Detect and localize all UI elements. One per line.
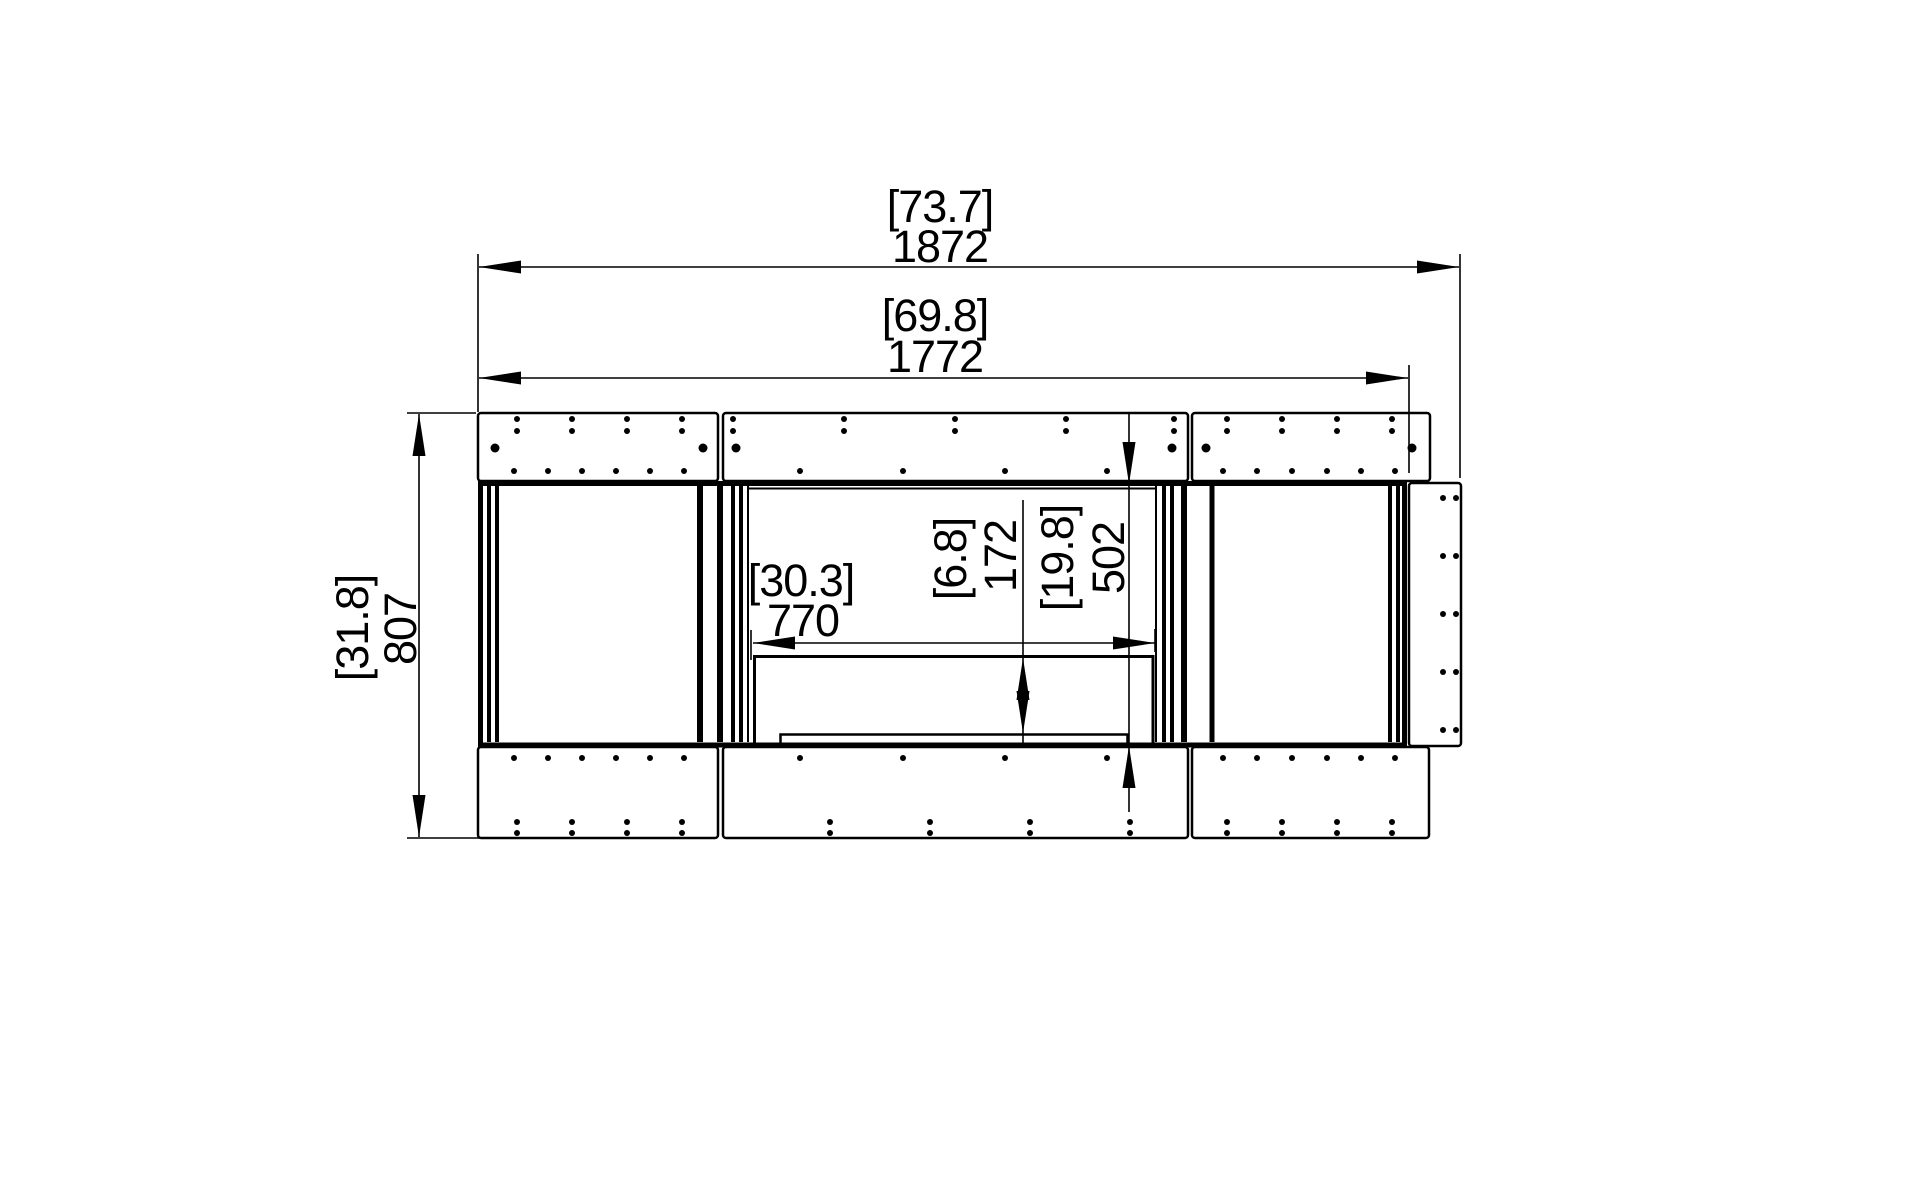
screw-hole-dot <box>797 755 803 761</box>
screw-hole-dot <box>1440 727 1446 733</box>
drawing-page: [73.7] 1872 [69.8] 1772 [31.8] 807 [30.3… <box>0 0 1920 1187</box>
screw-hole-dot <box>1279 819 1285 825</box>
screw-hole-dot <box>900 755 906 761</box>
screw-hole-dot <box>927 830 933 836</box>
screw-hole-dot <box>841 416 847 422</box>
screw-hole-dot <box>1453 553 1459 559</box>
screw-hole-dot <box>1440 553 1446 559</box>
screw-hole-dot <box>624 416 630 422</box>
dim-burner-height-mm: 172 <box>975 520 1026 592</box>
screw-hole-dot <box>1358 468 1364 474</box>
screw-hole-dot <box>514 416 520 422</box>
screw-hole-dot <box>679 428 685 434</box>
screw-hole-dot <box>1002 468 1008 474</box>
screw-hole-dot <box>1324 468 1330 474</box>
screw-hole-dot <box>1392 468 1398 474</box>
screw-hole-dot <box>613 755 619 761</box>
screw-hole-dot <box>624 830 630 836</box>
screw-hole-dot <box>1224 428 1230 434</box>
screw-hole-dot <box>1453 669 1459 675</box>
screw-hole-dot <box>624 819 630 825</box>
screw-hole-dot <box>1127 819 1133 825</box>
screw-hole-dot <box>1027 819 1033 825</box>
screw-hole-dot <box>732 444 741 453</box>
screw-hole-dot <box>730 428 736 434</box>
screw-hole-dot <box>511 755 517 761</box>
screw-hole-dot <box>569 416 575 422</box>
screw-hole-dot <box>511 468 517 474</box>
screw-hole-dot <box>679 830 685 836</box>
screw-hole-dot <box>1104 468 1110 474</box>
screw-hole-dot <box>1063 416 1069 422</box>
dim-opening-height-mm: 502 <box>1083 522 1134 594</box>
screw-hole-dot <box>1334 416 1340 422</box>
screw-hole-dot <box>681 468 687 474</box>
top-mounting-flange-panel <box>723 413 1188 481</box>
screw-hole-dot <box>647 468 653 474</box>
screw-hole-dot <box>1254 468 1260 474</box>
screw-hole-dot <box>699 444 708 453</box>
screw-hole-dot <box>1440 495 1446 501</box>
bottom-mounting-flange-panel <box>723 747 1188 838</box>
screw-hole-dot <box>1289 755 1295 761</box>
screw-hole-dot <box>827 819 833 825</box>
screw-hole-dot <box>1224 830 1230 836</box>
screw-hole-dot <box>624 428 630 434</box>
screw-hole-dot <box>1202 444 1211 453</box>
screw-hole-dot <box>1453 727 1459 733</box>
screw-hole-dot <box>1358 755 1364 761</box>
screw-hole-dot <box>730 416 736 422</box>
screw-hole-dot <box>1453 611 1459 617</box>
screw-hole-dot <box>1279 416 1285 422</box>
screw-hole-dot <box>1392 755 1398 761</box>
screw-hole-dot <box>1440 669 1446 675</box>
screw-hole-dot <box>952 428 958 434</box>
screw-hole-dot <box>1279 830 1285 836</box>
screw-hole-dot <box>514 819 520 825</box>
screw-hole-dot <box>514 428 520 434</box>
screw-hole-dot <box>1224 416 1230 422</box>
dim-opening-width-mm: 770 <box>767 595 839 646</box>
screw-hole-dot <box>900 468 906 474</box>
dim-body-width-mm: 1772 <box>887 331 983 382</box>
screw-hole-dot <box>1220 755 1226 761</box>
dim-overall-width-mm: 1872 <box>892 221 988 272</box>
screw-hole-dot <box>579 755 585 761</box>
screw-hole-dot <box>569 830 575 836</box>
screw-hole-dot <box>927 819 933 825</box>
screw-hole-dot <box>1027 830 1033 836</box>
screw-hole-dot <box>569 819 575 825</box>
screw-hole-dot <box>681 755 687 761</box>
dim-overall-height-mm: 807 <box>375 593 426 665</box>
screw-hole-dot <box>827 830 833 836</box>
screw-hole-dot <box>1389 428 1395 434</box>
screw-hole-dot <box>1453 495 1459 501</box>
screw-hole-dot <box>841 428 847 434</box>
screw-hole-dot <box>1440 611 1446 617</box>
dim-opening-height-inches: [19.8] <box>1032 505 1083 612</box>
screw-hole-dot <box>1002 755 1008 761</box>
screw-hole-dot <box>1334 830 1340 836</box>
dim-overall-height-inches: [31.8] <box>327 575 378 682</box>
screw-hole-dot <box>647 755 653 761</box>
screw-hole-dot <box>1389 819 1395 825</box>
screw-hole-dot <box>514 830 520 836</box>
screw-hole-dot <box>1389 416 1395 422</box>
screw-hole-dot <box>491 444 500 453</box>
screw-hole-dot <box>797 468 803 474</box>
screw-hole-dot <box>1171 428 1177 434</box>
screw-hole-dot <box>545 468 551 474</box>
screw-hole-dot <box>1220 468 1226 474</box>
technical-drawing-canvas: [73.7] 1872 [69.8] 1772 [31.8] 807 [30.3… <box>0 0 1920 1187</box>
screw-hole-dot <box>1063 428 1069 434</box>
screw-hole-dot <box>1324 755 1330 761</box>
screw-hole-dot <box>1104 755 1110 761</box>
screw-hole-dot <box>1334 428 1340 434</box>
screw-hole-dot <box>1279 428 1285 434</box>
screw-hole-dot <box>545 755 551 761</box>
screw-hole-dot <box>569 428 575 434</box>
screw-hole-dot <box>1389 830 1395 836</box>
screw-hole-dot <box>679 416 685 422</box>
screw-hole-dot <box>1254 755 1260 761</box>
screw-hole-dot <box>579 468 585 474</box>
screw-hole-dot <box>1334 819 1340 825</box>
screw-hole-dot <box>1171 416 1177 422</box>
screw-hole-dot <box>613 468 619 474</box>
screw-hole-dot <box>1289 468 1295 474</box>
screw-hole-dot <box>679 819 685 825</box>
dim-burner-height-inches: [6.8] <box>925 518 976 601</box>
screw-hole-dot <box>1127 830 1133 836</box>
screw-hole-dot <box>1224 819 1230 825</box>
screw-hole-dot <box>952 416 958 422</box>
screw-hole-dot <box>1168 444 1177 453</box>
